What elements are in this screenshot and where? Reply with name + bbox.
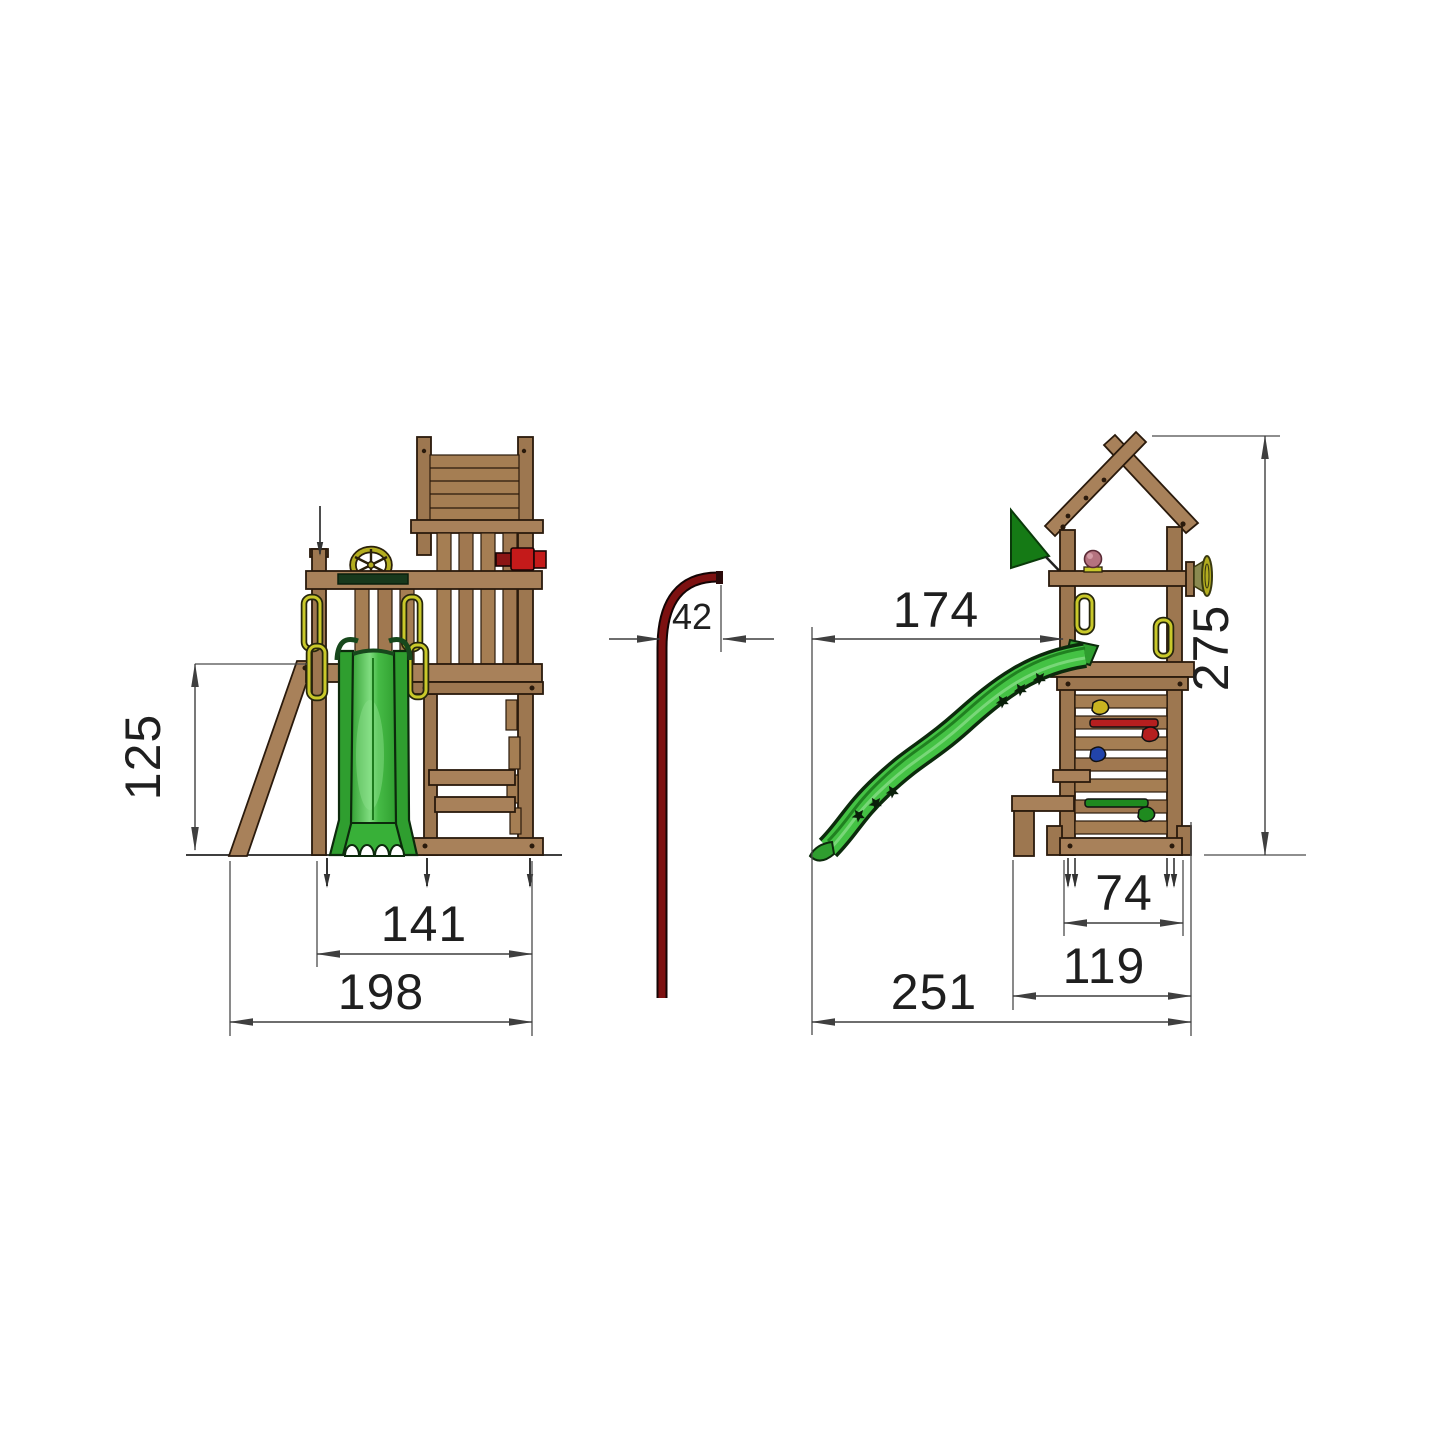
dim-label-total-depth: 251 — [891, 964, 977, 1020]
wall-piece — [506, 700, 517, 730]
bench-board — [435, 797, 515, 812]
dim-label-tower-base-width: 74 — [1095, 865, 1153, 921]
dim-label-total-width: 198 — [338, 964, 424, 1020]
dim-label-platform-height: 125 — [115, 714, 171, 800]
slide-shine — [356, 700, 384, 810]
dim-label-slide-reach: 174 — [893, 582, 979, 638]
background — [0, 0, 1445, 1445]
nest-bottom-rail — [411, 520, 543, 533]
bolt — [1066, 682, 1071, 687]
floor-beam-2 — [1057, 677, 1188, 690]
dim-label-total-height: 275 — [1183, 605, 1239, 691]
dim-label-base-with-bench-width: 119 — [1063, 938, 1146, 994]
nest-bolt — [522, 449, 526, 453]
bolt — [1170, 844, 1175, 849]
nest-left-post — [417, 437, 431, 555]
green-bar — [1085, 799, 1148, 807]
bottom-beam — [411, 838, 543, 855]
bolt — [423, 844, 428, 849]
bolt — [530, 686, 535, 691]
bolt — [530, 844, 535, 849]
slide-front — [330, 640, 417, 856]
blue-hold — [1090, 747, 1106, 761]
lower-beam-2 — [411, 682, 543, 694]
wall-piece — [509, 737, 520, 769]
bench-seat — [1012, 796, 1074, 811]
dim-label-pole-offset: 42 — [672, 596, 712, 637]
bench-shelf — [1053, 770, 1090, 782]
red-hold — [1142, 727, 1159, 741]
nest-right-post — [518, 437, 533, 855]
bolt — [1068, 844, 1073, 849]
bench-board — [429, 770, 515, 785]
red-bar — [1090, 719, 1158, 727]
nest-bolt — [422, 449, 426, 453]
dimension-drawing: 125 141 198 42 174 — [0, 0, 1445, 1445]
nest-panel — [430, 455, 519, 522]
base-beam — [1060, 838, 1182, 855]
yellow-hold — [1092, 700, 1109, 714]
slide-top-bar — [338, 574, 408, 584]
knob — [1084, 551, 1102, 573]
bolt — [1178, 682, 1183, 687]
pole-end-cap — [716, 571, 723, 584]
bench-leg — [1014, 811, 1034, 856]
green-hold — [1138, 807, 1155, 821]
dim-label-frame-width: 141 — [381, 896, 467, 952]
front-rail-beam — [1049, 571, 1195, 586]
